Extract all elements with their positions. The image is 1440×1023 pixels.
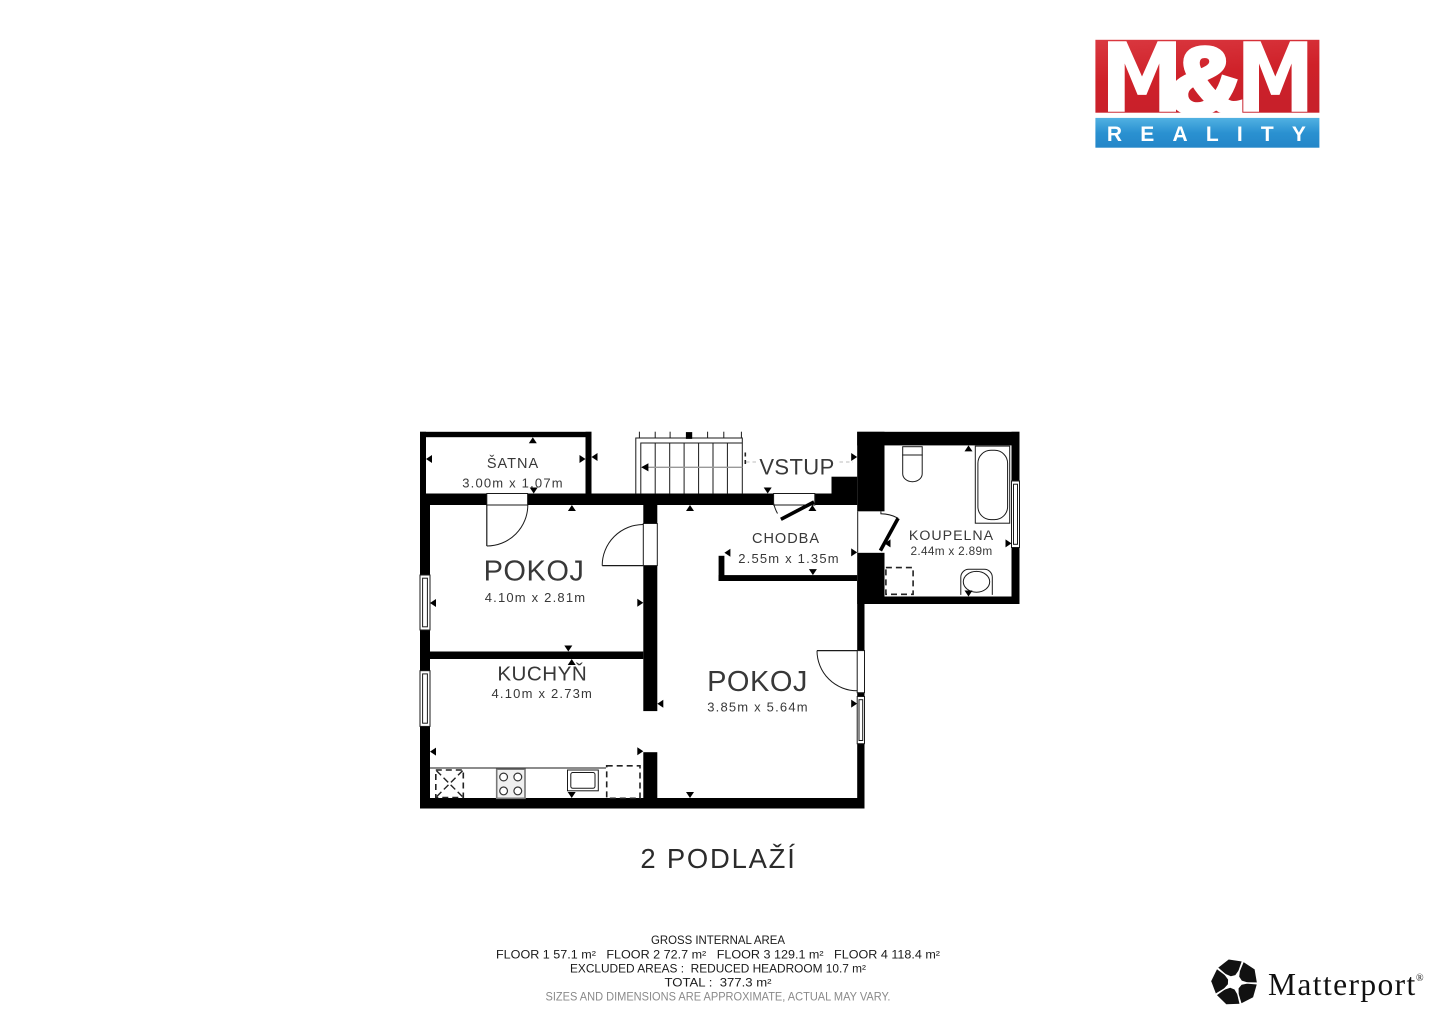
svg-text:3.00m x 1.07m: 3.00m x 1.07m bbox=[462, 476, 564, 491]
svg-text:GROSS INTERNAL AREA: GROSS INTERNAL AREA bbox=[651, 934, 785, 947]
svg-text:ŠATNA: ŠATNA bbox=[487, 455, 539, 472]
svg-text:EXCLUDED AREAS : REDUCED HEAD: EXCLUDED AREAS : REDUCED HEADROOM 10.7 m… bbox=[570, 962, 866, 975]
svg-text:KOUPELNA: KOUPELNA bbox=[909, 528, 994, 544]
svg-text:REALITY: REALITY bbox=[1107, 123, 1324, 146]
svg-text:2.44m x 2.89m: 2.44m x 2.89m bbox=[911, 544, 993, 558]
svg-text:4.10m x 2.81m: 4.10m x 2.81m bbox=[485, 590, 587, 605]
svg-text:Matterport: Matterport bbox=[1268, 967, 1417, 1002]
svg-text:FLOOR 1 57.1 m² FLOOR 2 72.7: FLOOR 1 57.1 m² FLOOR 2 72.7 m² FLOOR 3 … bbox=[496, 948, 940, 961]
svg-text:4.10m x 2.73m: 4.10m x 2.73m bbox=[492, 686, 594, 701]
svg-text:POKOJ: POKOJ bbox=[707, 666, 808, 698]
svg-text:&: & bbox=[1168, 28, 1243, 133]
svg-text:VSTUP: VSTUP bbox=[759, 455, 834, 480]
svg-text:CHODBA: CHODBA bbox=[752, 531, 820, 547]
svg-text:2.55m x 1.35m: 2.55m x 1.35m bbox=[738, 551, 840, 566]
svg-text:SIZES AND DIMENSIONS ARE APPRO: SIZES AND DIMENSIONS ARE APPROXIMATE, AC… bbox=[546, 991, 891, 1004]
svg-text:KUCHYŇ: KUCHYŇ bbox=[497, 663, 587, 686]
svg-text:TOTAL : 377.3 m²: TOTAL : 377.3 m² bbox=[665, 977, 772, 990]
svg-text:2 PODLAŽÍ: 2 PODLAŽÍ bbox=[640, 843, 796, 874]
svg-text:®: ® bbox=[1416, 973, 1424, 984]
svg-text:3.85m x 5.64m: 3.85m x 5.64m bbox=[707, 699, 809, 714]
svg-text:POKOJ: POKOJ bbox=[484, 556, 585, 588]
